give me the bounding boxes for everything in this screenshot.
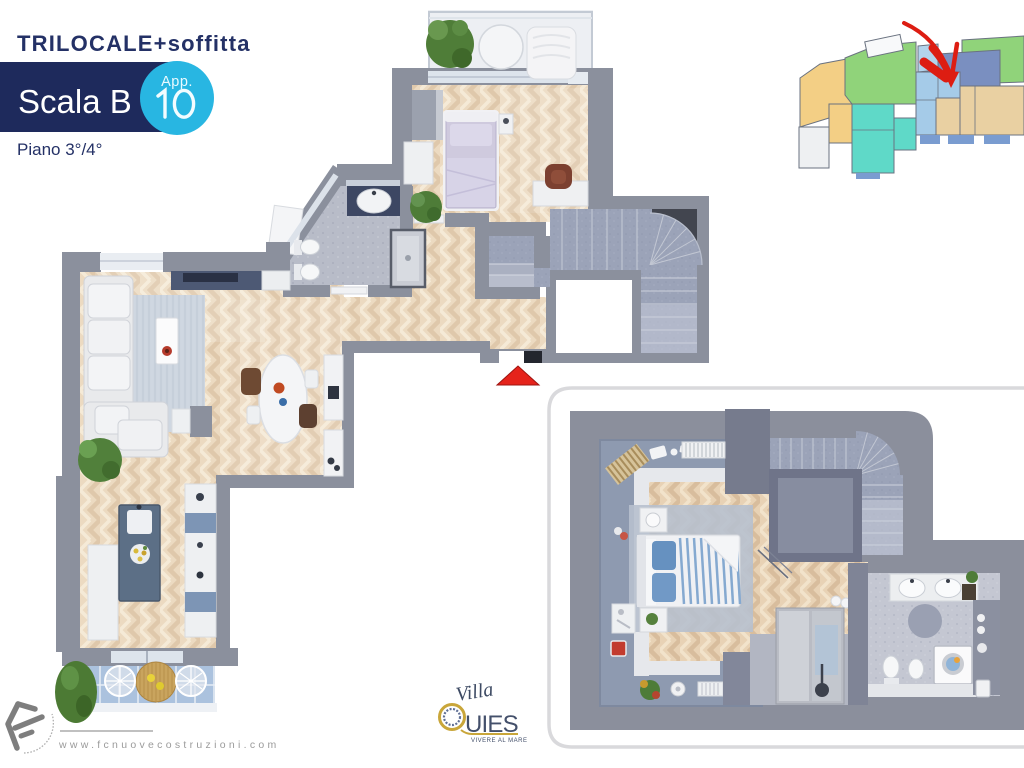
svg-text:Piano 3°/4°: Piano 3°/4° [17, 140, 102, 159]
svg-text:Scala B: Scala B [18, 83, 132, 120]
svg-text:App.: App. [161, 74, 193, 90]
svg-text:TRILOCALE+soffitta: TRILOCALE+soffitta [17, 31, 251, 56]
svg-text:www.fcnuovecostruzioni.com: www.fcnuovecostruzioni.com [58, 739, 280, 751]
svg-text:VIVERE AL MARE: VIVERE AL MARE [471, 738, 527, 744]
